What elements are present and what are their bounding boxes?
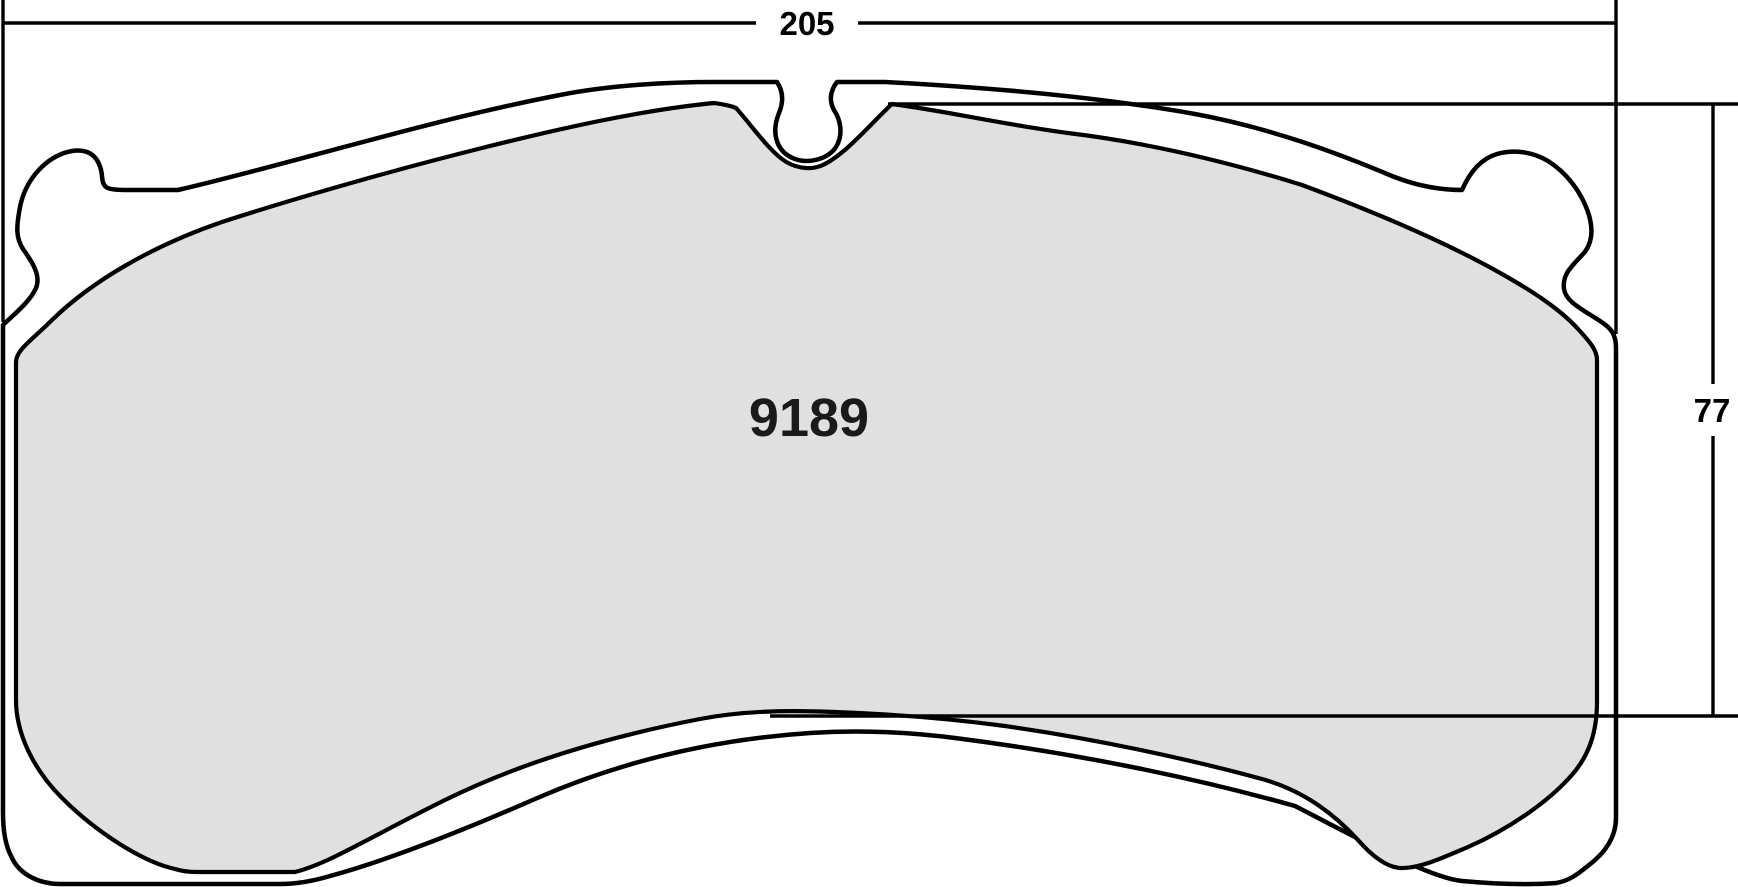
brake-pad-diagram: 205 77 9189 xyxy=(0,0,1738,887)
height-dimension-label: 77 xyxy=(1694,392,1731,429)
friction-material xyxy=(16,103,1597,872)
brake-pad-drawing-svg: 205 77 9189 xyxy=(0,0,1738,887)
part-number-label: 9189 xyxy=(749,388,869,448)
width-dimension-label: 205 xyxy=(779,5,834,42)
